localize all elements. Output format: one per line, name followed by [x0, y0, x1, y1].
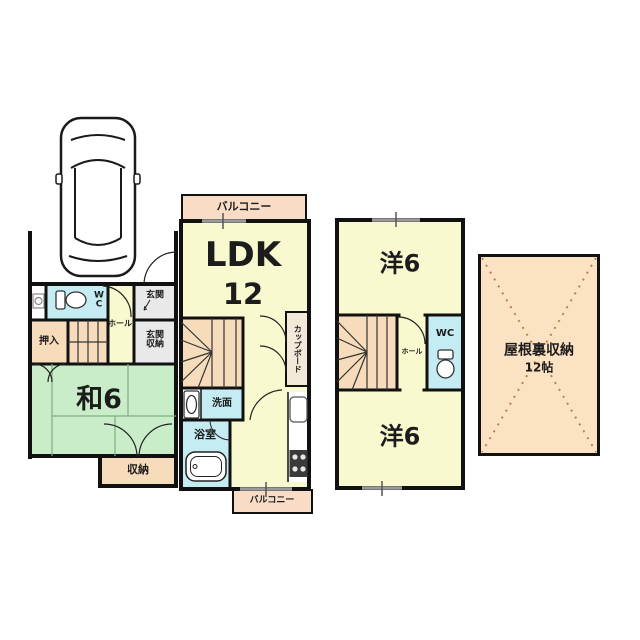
- structure-overlay: [0, 0, 640, 640]
- ldk-label: LDK: [205, 238, 281, 274]
- kitchen-sink-icon: [290, 397, 307, 422]
- car-icon: [56, 118, 140, 276]
- door-arc-3f: [398, 317, 425, 344]
- toilet-icon-1f: [56, 291, 86, 309]
- hall-3f-label: ホール: [402, 348, 423, 355]
- genkan-label: 玄関: [146, 291, 164, 300]
- wc-3f-label: WC: [436, 329, 454, 340]
- senmen-label: 洗面: [212, 399, 232, 410]
- bath-label: 浴室: [194, 429, 216, 441]
- oshiire-label: 押入: [39, 337, 59, 348]
- toilet-icon-3f: [437, 350, 454, 378]
- floorplan: WC 押入 ホール 玄関 玄関収納 和6 収納 バルコニー LDK 12 カップ…: [0, 0, 640, 640]
- hall-1f-label: ホール: [108, 320, 132, 328]
- stairs-3f: [337, 315, 387, 390]
- washer-nook-icon: [33, 294, 44, 308]
- washing-machine-icon: [184, 391, 199, 418]
- attic-size-label: 12帖: [525, 362, 554, 375]
- balcony-bottom-label: バルコニー: [250, 496, 295, 505]
- western-room-bottom-label: 洋6: [380, 424, 421, 449]
- ldk-size-label: 12: [223, 279, 263, 309]
- wc-1f-label: WC: [94, 292, 104, 311]
- bathtub-icon: [186, 452, 226, 481]
- storage-1f-label: 収納: [127, 464, 149, 476]
- cupboard-label: カップボード: [293, 325, 301, 373]
- attic-name-label: 屋根裏収納: [504, 344, 574, 359]
- washitsu-label: 和6: [76, 386, 122, 414]
- stove-icon: [290, 450, 308, 477]
- stairs-2f: [181, 318, 236, 388]
- genkan-storage-label: 玄関収納: [144, 332, 166, 351]
- balcony-top-label: バルコニー: [217, 201, 272, 213]
- stairs-1f: [68, 320, 108, 364]
- western-room-top-label: 洋6: [380, 251, 421, 276]
